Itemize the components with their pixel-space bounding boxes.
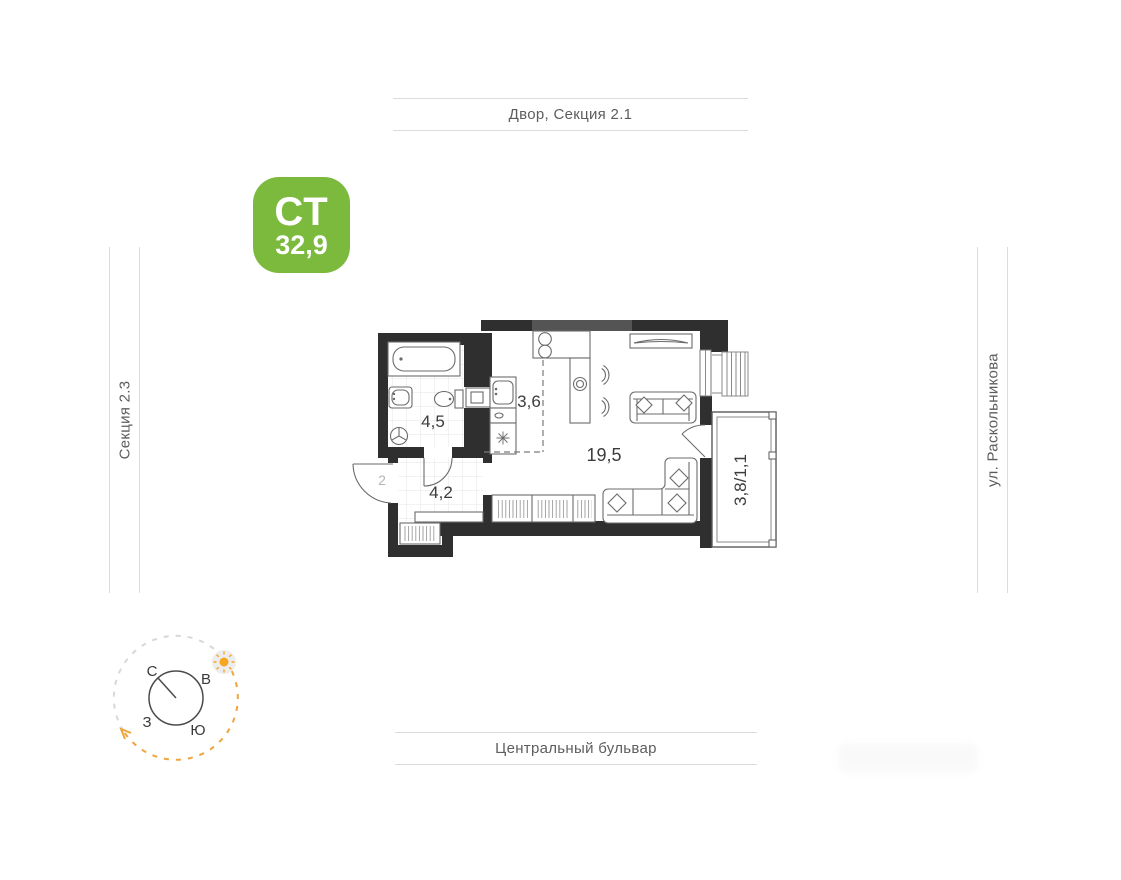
living-area-label: 19,5	[586, 445, 621, 465]
floor-drain	[391, 428, 408, 445]
chair-2	[602, 398, 609, 417]
compass-north: С	[147, 663, 158, 680]
kitchen-area-label: 3,6	[517, 392, 541, 411]
compass-south: Ю	[190, 722, 205, 739]
chair-1	[602, 366, 609, 385]
entrance-number: 2	[378, 472, 386, 488]
sun-icon	[212, 650, 236, 674]
compass-west: З	[142, 714, 151, 731]
balcony-area-label: 3,8/1,1	[731, 454, 750, 506]
shaft-box	[466, 388, 490, 407]
kitchen-sink-unit	[490, 377, 516, 408]
bathtub	[388, 342, 460, 376]
compass: С В З Ю	[114, 636, 238, 760]
stove-counter	[533, 331, 590, 358]
corner-sofa	[603, 458, 697, 523]
floor-plan-page: Двор, Секция 2.1 Центральный бульвар Сек…	[0, 0, 1121, 880]
bar-table	[570, 358, 590, 423]
hall-cabinet	[415, 512, 483, 522]
top-window-band	[532, 320, 632, 331]
wardrobe-top	[630, 334, 692, 348]
entry-door	[353, 464, 393, 503]
fridge-module	[490, 423, 516, 454]
toilet	[435, 390, 464, 408]
bathroom-sink	[389, 387, 412, 408]
sofa	[630, 392, 696, 423]
hallway-area-label: 4,2	[429, 483, 453, 502]
floor-plan-svg: 4,5 3,6 19,5 4,2 3,8/1,1 2 С В З Ю	[0, 0, 1121, 880]
compass-east: В	[201, 671, 211, 688]
counter-module	[490, 408, 516, 423]
bathroom-area-label: 4,5	[421, 412, 445, 431]
ac-basket	[712, 352, 748, 396]
window-right-wall	[700, 350, 711, 396]
hall-wardrobe	[400, 523, 440, 544]
balcony-door	[682, 425, 705, 457]
wardrobe-row	[492, 495, 595, 522]
